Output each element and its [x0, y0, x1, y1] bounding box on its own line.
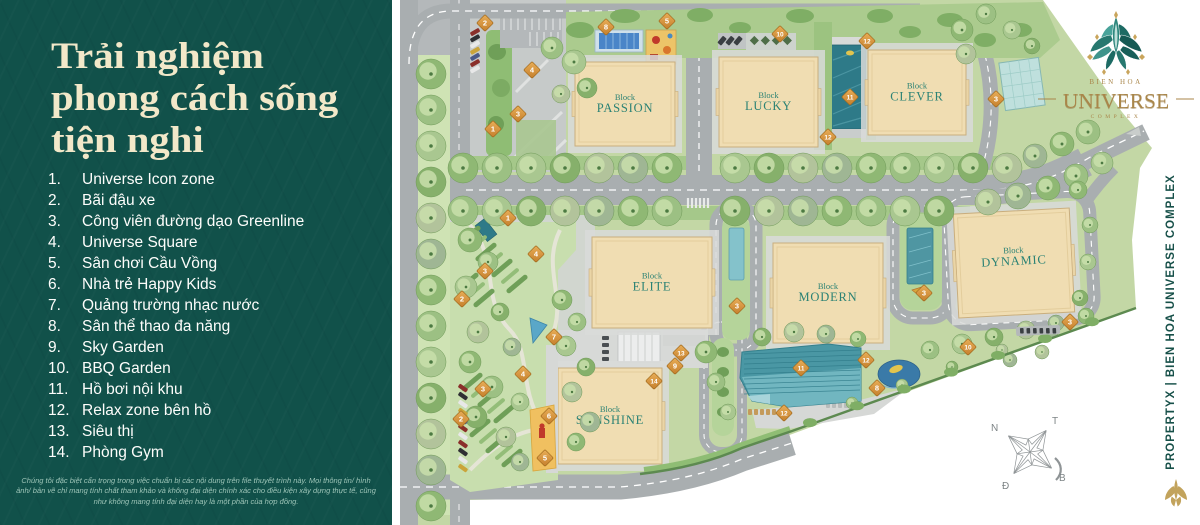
svg-text:5: 5 [665, 17, 669, 26]
svg-text:LUCKY: LUCKY [745, 99, 792, 113]
svg-text:8: 8 [875, 384, 879, 393]
svg-text:5: 5 [543, 454, 547, 463]
svg-text:BIEN HOA: BIEN HOA [1089, 78, 1142, 86]
svg-text:B: B [1059, 473, 1066, 484]
svg-text:6: 6 [547, 412, 551, 421]
svg-text:12: 12 [780, 410, 788, 417]
svg-text:T: T [1052, 416, 1058, 427]
svg-text:9: 9 [673, 362, 677, 371]
svg-text:3: 3 [516, 110, 520, 119]
svg-text:8: 8 [604, 23, 608, 32]
svg-text:3: 3 [1068, 318, 1072, 327]
svg-text:3: 3 [481, 385, 485, 394]
svg-text:2: 2 [460, 295, 464, 304]
svg-text:7: 7 [552, 333, 556, 342]
svg-text:12: 12 [824, 134, 832, 141]
svg-text:10: 10 [776, 31, 784, 38]
svg-text:1: 1 [491, 125, 495, 134]
svg-text:12: 12 [863, 38, 871, 45]
svg-text:13: 13 [677, 350, 685, 357]
svg-text:14: 14 [650, 378, 658, 385]
svg-text:10: 10 [964, 344, 972, 351]
svg-text:3: 3 [735, 302, 739, 311]
svg-text:MODERN: MODERN [799, 290, 858, 304]
svg-text:PROPERTYX | BIEN HOA UNIVERSE: PROPERTYX | BIEN HOA UNIVERSE COMPLEX [1165, 174, 1177, 469]
svg-text:CLEVER: CLEVER [890, 90, 943, 104]
svg-text:2: 2 [459, 415, 463, 424]
svg-text:N: N [991, 423, 998, 434]
svg-text:Đ: Đ [1002, 481, 1009, 492]
svg-text:UNIVERSE: UNIVERSE [1063, 89, 1169, 113]
svg-text:11: 11 [847, 94, 854, 101]
svg-text:3: 3 [922, 289, 926, 298]
svg-text:1: 1 [506, 214, 510, 223]
svg-text:12: 12 [862, 357, 870, 364]
svg-text:2: 2 [483, 19, 487, 28]
svg-text:11: 11 [798, 365, 805, 372]
svg-text:3: 3 [483, 267, 487, 276]
svg-text:3: 3 [994, 95, 998, 104]
svg-text:ELITE: ELITE [633, 280, 672, 294]
svg-text:COMPLEX: COMPLEX [1091, 114, 1142, 120]
svg-text:PASSION: PASSION [597, 101, 654, 115]
